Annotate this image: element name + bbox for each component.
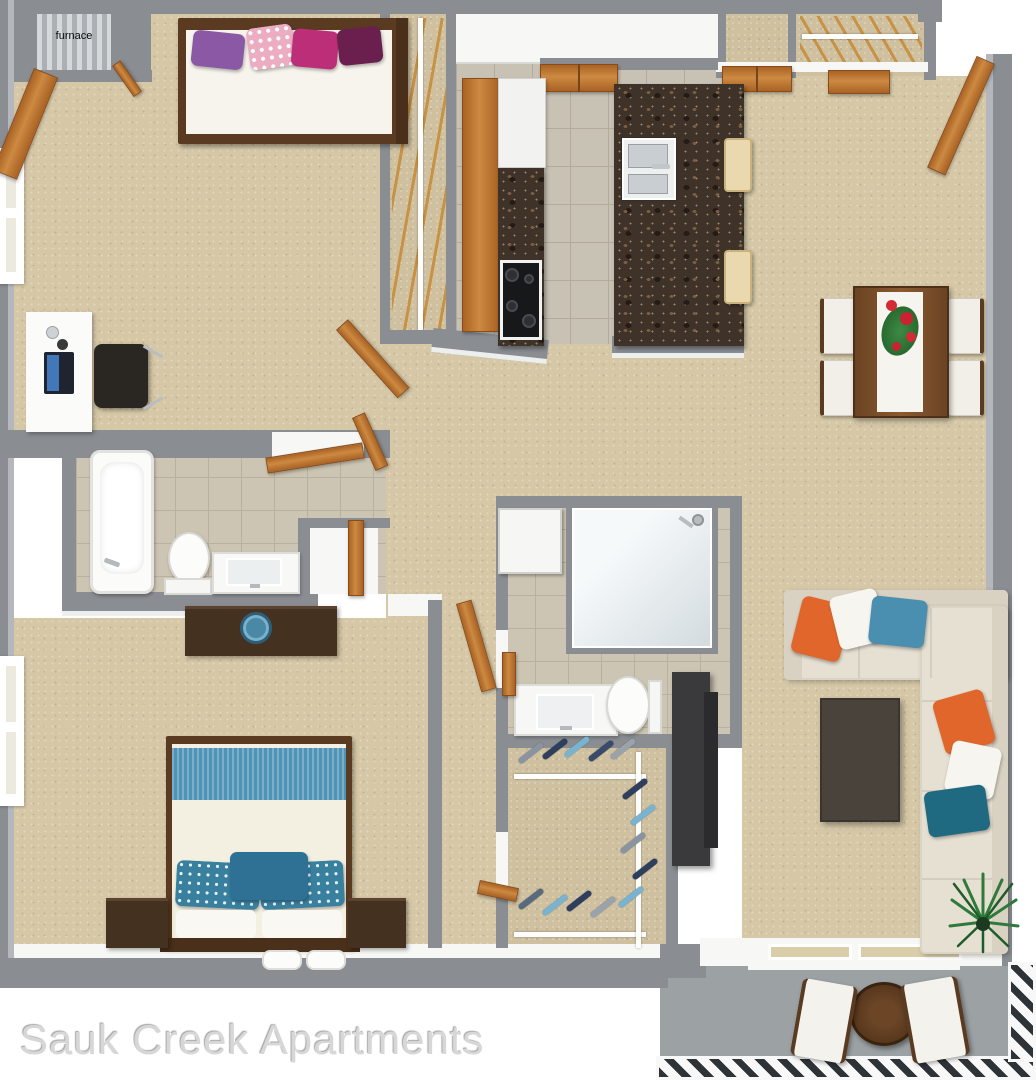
- entry-closet-rod: [802, 34, 918, 39]
- patio-door-step: [748, 962, 960, 970]
- patio-door-glass-1: [768, 944, 852, 960]
- bed2-blue-band: [172, 748, 346, 800]
- stove-burner-2: [524, 274, 534, 284]
- island-faucet: [652, 164, 670, 169]
- coffee-table: [820, 698, 900, 822]
- island-sink-basin-2: [628, 174, 668, 194]
- bed1-pillow-purple: [190, 29, 245, 70]
- bed1-pillow-plum: [336, 26, 384, 66]
- dining-chair-3: [948, 298, 984, 354]
- wall-top: [0, 0, 932, 14]
- closet2-rod-bottom: [514, 932, 646, 937]
- centerpiece-flower-4: [892, 342, 901, 351]
- wall-bathroom2-right: [730, 496, 742, 748]
- watermark-title: Sauk Creek Apartments: [20, 1016, 485, 1064]
- toilet2-tank: [648, 680, 662, 734]
- entry-closet-b-bifold: [828, 70, 890, 94]
- linen-cabinet2: [498, 508, 562, 574]
- toilet1-bowl: [168, 532, 210, 584]
- bar-stool-2: [724, 250, 752, 304]
- refrigerator: [498, 78, 546, 168]
- wall-bedroom2-right: [428, 600, 442, 948]
- bathroom2-door-jamb: [502, 652, 516, 696]
- bed1-pillow-pink: [245, 23, 296, 71]
- sofa-pillow-blue-1: [868, 595, 929, 649]
- wall-closet2-left-a: [496, 746, 508, 832]
- kitchen-cabinet-run: [462, 78, 500, 332]
- laptop-screen: [47, 355, 59, 391]
- vanity2-faucet: [560, 726, 572, 730]
- furnace-label: furnace: [37, 30, 111, 42]
- wall-bathroom1-left: [62, 444, 76, 594]
- bedroom1-window-pane2: [4, 216, 18, 274]
- patio-railing-bottom: [656, 1056, 1036, 1080]
- potted-plant: [944, 870, 1022, 960]
- nightstand-left: [106, 898, 168, 948]
- dining-chair-4: [948, 360, 984, 416]
- media-unit-back: [704, 692, 718, 848]
- office-chair: [94, 344, 148, 408]
- floor-plan: furnace: [0, 0, 1036, 1080]
- stove-burner-3: [506, 300, 518, 312]
- bed2-pillow-center: [230, 852, 308, 900]
- bed1-footboard: [396, 18, 408, 144]
- bedroom1-closet-rod: [418, 18, 423, 338]
- shower-glass: [572, 508, 712, 648]
- hallway-floor-closet: [442, 618, 502, 948]
- bedroom2-window-pane2: [4, 730, 18, 796]
- closet2-rod-top: [514, 774, 646, 779]
- bedroom2-window-pane: [4, 664, 18, 724]
- toilet1-tank: [164, 578, 212, 595]
- vanity1-faucet: [250, 584, 260, 588]
- hallway-floor-top: [386, 344, 742, 496]
- dining-chair-1: [820, 298, 856, 354]
- centerpiece-flower-3: [906, 332, 916, 342]
- furnace-closet-left-wall: [14, 14, 37, 70]
- stove-burner-1: [505, 268, 519, 282]
- centerpiece-flower-2: [900, 312, 913, 325]
- entry-closet-a-bifold-split: [756, 66, 758, 92]
- nightstand-right: [348, 898, 406, 948]
- bed1-pillow-magenta: [290, 28, 339, 70]
- slipper-2: [306, 950, 346, 970]
- decorative-plate: [240, 612, 272, 644]
- dining-chair-2: [820, 360, 856, 416]
- desk-speaker-2: [57, 339, 68, 350]
- vanity2-sink: [536, 694, 594, 730]
- wall-closet1-right: [446, 14, 456, 344]
- sofa-seam-2: [930, 608, 932, 678]
- centerpiece-flower-1: [886, 300, 897, 311]
- stove-burner-4: [522, 314, 536, 328]
- vanity1-sink: [226, 558, 282, 586]
- kitchen-counter-top: [456, 14, 718, 64]
- laundry-bifold-split: [578, 64, 580, 92]
- kitchen-island: [614, 84, 744, 346]
- bar-stool-1: [724, 138, 752, 192]
- wall-linen-top: [298, 518, 390, 528]
- bed2-white-pillow-right: [262, 910, 342, 938]
- desk-speaker-1: [46, 326, 59, 339]
- linen-closet-door: [348, 520, 364, 596]
- closet2-doorway: [496, 832, 508, 888]
- slipper-1: [262, 950, 302, 970]
- patio-railing-right: [1008, 962, 1036, 1062]
- furnace-unit: [37, 14, 111, 72]
- sofa-pillow-teal: [923, 784, 991, 838]
- toilet2-bowl: [606, 676, 650, 734]
- bed2-white-pillow-left: [176, 910, 256, 938]
- linen-closet-floor: [310, 528, 378, 594]
